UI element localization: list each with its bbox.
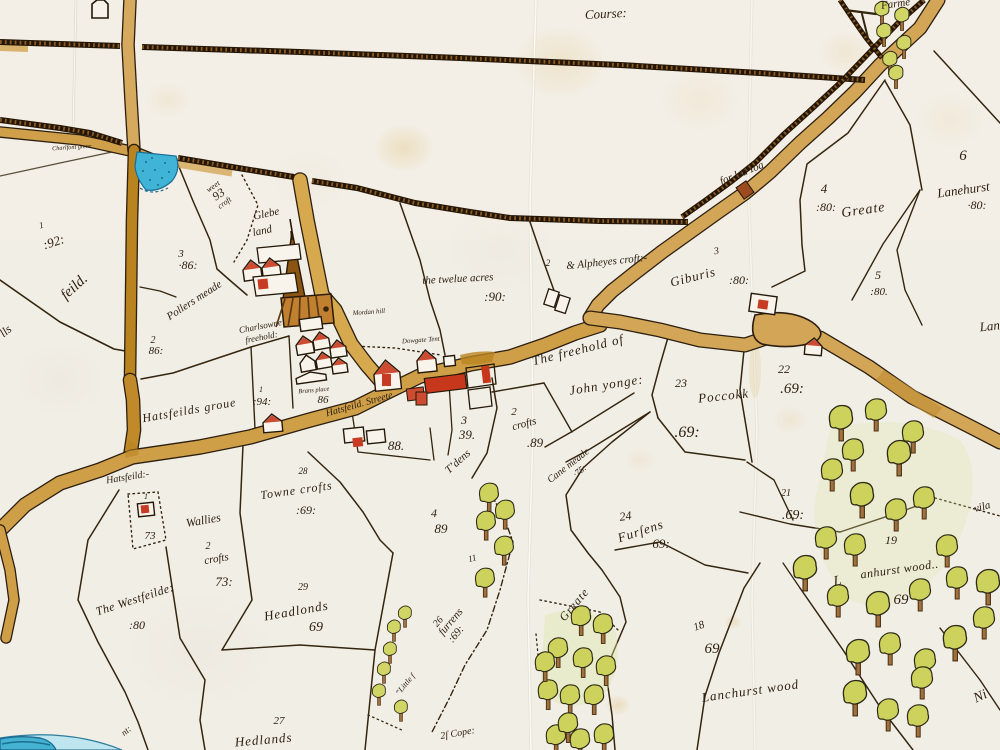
svg-text::69:: :69: — [296, 503, 316, 517]
svg-text:.69:: .69: — [780, 381, 804, 397]
svg-text:2: 2 — [546, 258, 551, 268]
svg-text:·80:: ·80: — [968, 198, 987, 212]
svg-text:88.: 88. — [388, 438, 404, 453]
svg-text:23: 23 — [675, 376, 687, 390]
svg-text:73: 73 — [145, 530, 157, 542]
svg-text:22: 22 — [778, 362, 790, 376]
svg-text:21: 21 — [781, 488, 791, 499]
svg-text:Course:: Course: — [584, 5, 627, 22]
svg-text:1: 1 — [259, 385, 263, 394]
svg-text::80: :80 — [129, 618, 145, 632]
svg-text:39.: 39. — [458, 427, 475, 442]
svg-text:89: 89 — [435, 521, 449, 536]
svg-text:1: 1 — [144, 492, 148, 501]
svg-text::80.: :80. — [870, 286, 887, 298]
svg-text:69: 69 — [894, 592, 910, 608]
svg-text:4: 4 — [821, 181, 828, 196]
svg-text:86: 86 — [318, 394, 330, 406]
svg-text::80:: :80: — [729, 273, 749, 287]
svg-text:·86:: ·86: — [179, 258, 198, 272]
svg-text:2: 2 — [511, 406, 517, 418]
svg-text:.69:: .69: — [674, 424, 699, 441]
svg-text:29: 29 — [298, 582, 308, 593]
svg-text:73:: 73: — [215, 574, 232, 589]
svg-text:24: 24 — [619, 508, 633, 524]
svg-text::90:: :90: — [484, 289, 506, 304]
svg-text:.69:: .69: — [782, 508, 804, 523]
svg-text:86:: 86: — [149, 345, 164, 357]
svg-text:19: 19 — [885, 533, 897, 547]
svg-text:2: 2 — [206, 541, 211, 552]
svg-text:Lane: Lane — [978, 317, 1000, 335]
svg-text::94:: :94: — [253, 396, 271, 408]
svg-text::80:: :80: — [816, 200, 836, 214]
svg-text:6: 6 — [959, 148, 967, 164]
svg-text:69:: 69: — [652, 536, 669, 551]
svg-text:69: 69 — [309, 620, 323, 635]
svg-text:.89: .89 — [527, 435, 544, 450]
svg-text:5: 5 — [875, 268, 881, 282]
svg-text:4: 4 — [431, 506, 437, 520]
svg-text:28: 28 — [299, 466, 309, 476]
svg-text:69: 69 — [705, 641, 721, 657]
svg-text:3: 3 — [460, 413, 467, 427]
svg-text:27: 27 — [274, 715, 286, 727]
